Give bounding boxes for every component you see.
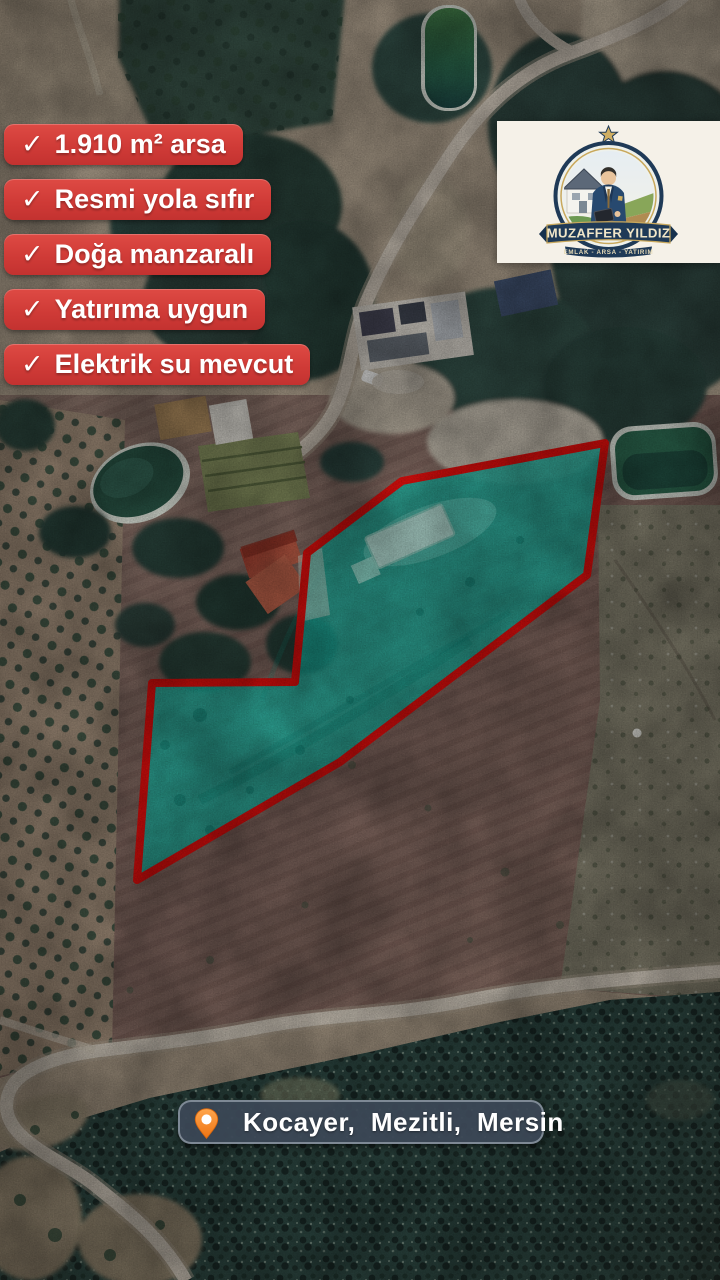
check-icon: ✓ (21, 129, 44, 160)
badge-label: Elektrik su mevcut (55, 349, 294, 380)
badge-label: Doğa manzaralı (55, 239, 255, 270)
badge-road-access: ✓ Resmi yola sıfır (4, 179, 271, 220)
location-label: Kocayer, Mezitli, Mersin (178, 1100, 544, 1144)
badge-label: Yatırıma uygun (55, 294, 249, 325)
agency-name: MUZAFFER YILDIZ (547, 226, 671, 241)
check-icon: ✓ (21, 239, 44, 270)
agency-tagline: EMLAK - ARSA - YATIRIM (564, 249, 654, 256)
listing-image: ✓ 1.910 m² arsa ✓ Resmi yola sıfır ✓ Doğ… (0, 0, 720, 1280)
badge-nature-view: ✓ Doğa manzaralı (4, 234, 271, 275)
feature-badge-list: ✓ 1.910 m² arsa ✓ Resmi yola sıfır ✓ Doğ… (4, 124, 310, 385)
location-pin-icon (193, 1107, 220, 1140)
star-icon (600, 126, 618, 143)
check-icon: ✓ (21, 349, 44, 380)
badge-utilities: ✓ Elektrik su mevcut (4, 344, 310, 385)
location-text: Kocayer, Mezitli, Mersin (243, 1107, 564, 1138)
badge-investment: ✓ Yatırıma uygun (4, 289, 265, 330)
badge-area: ✓ 1.910 m² arsa (4, 124, 243, 165)
check-icon: ✓ (21, 184, 44, 215)
agency-emblem: MUZAFFER YILDIZ EMLAK - ARSA - YATIRIM (497, 121, 720, 263)
badge-label: 1.910 m² arsa (55, 129, 226, 160)
badge-label: Resmi yola sıfır (55, 184, 255, 215)
check-icon: ✓ (21, 294, 44, 325)
agency-logo: MUZAFFER YILDIZ EMLAK - ARSA - YATIRIM (497, 121, 720, 263)
